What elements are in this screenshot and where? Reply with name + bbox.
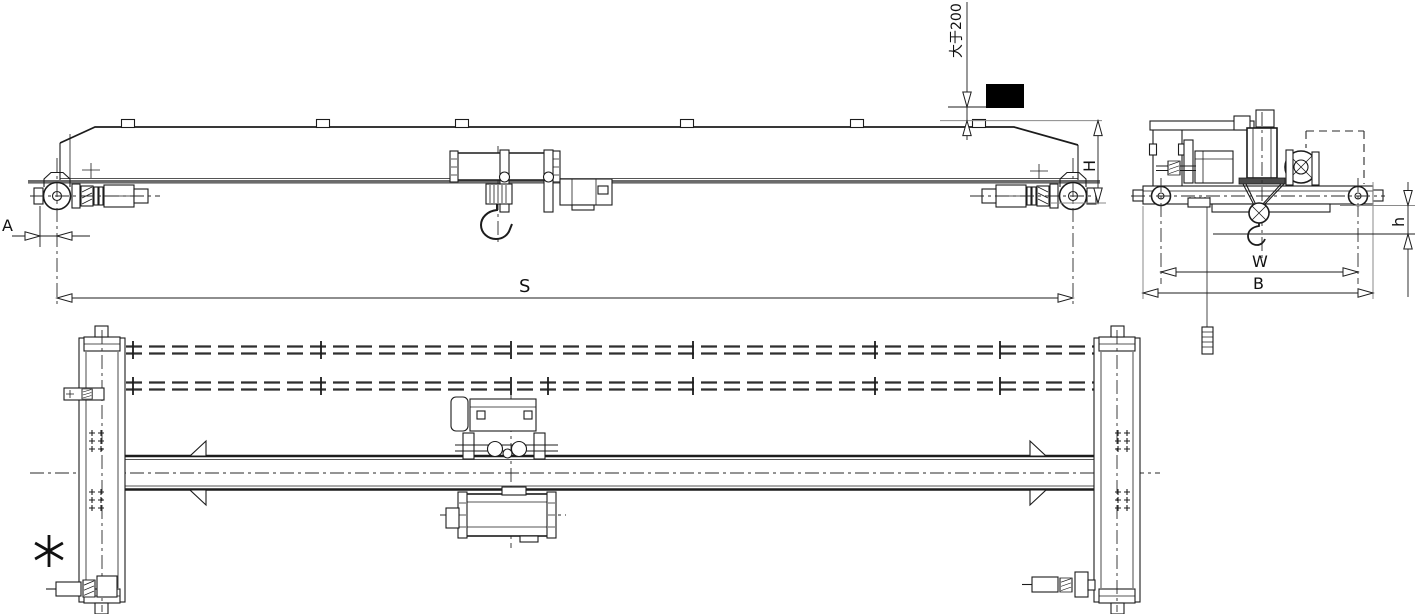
hook-clearance-dimension-label: h [1389,217,1408,227]
plan-view [30,326,1160,614]
hoist-trolley-elevation [450,146,612,246]
gusset-plate [1030,490,1046,505]
asterisk-marker [35,535,63,567]
main-girder [28,120,1100,182]
left-wheel-assembly [34,173,148,210]
dimension-A: A [2,206,90,247]
trolley-motor-plan [451,397,468,431]
hoist-plan [440,393,566,548]
gusset-plate [190,441,206,456]
festoon-hangers [133,341,1000,395]
dimension-W: W [1161,252,1358,276]
girder-plan [30,441,1160,505]
span-dimension-label: S [519,276,530,297]
end-view: W B h [1131,110,1415,354]
height-dimension-label: H [1080,160,1099,172]
left-end-carriage-plan [79,326,125,614]
wheelbase-dimension-label: W [1252,252,1268,271]
gusset-plate [1030,441,1046,456]
rope-drum-plan [465,494,549,536]
dim-a-label: A [2,216,13,235]
festoon-conductor-lines [80,341,1098,395]
elevation-view: A S 大于200 H [2,2,1106,308]
hoist-motor [1195,151,1233,183]
right-travel-drive-plan [1022,572,1095,597]
clearance-dimension: 大于200 [940,2,1102,140]
crane-general-arrangement-drawing: A S 大于200 H [0,0,1419,614]
clearance-note-label: 大于200 [949,3,965,58]
right-end-carriage-plan [1094,326,1140,614]
carriage-length-dimension-label: B [1253,274,1264,293]
dimension-S: S [57,276,1073,302]
towing-bracket [64,388,104,400]
drawing-canvas: A S 大于200 H [0,0,1419,614]
gusset-plate [190,490,206,505]
runway-obstruction-block [986,84,1024,108]
pendant-control-station [1202,327,1213,354]
